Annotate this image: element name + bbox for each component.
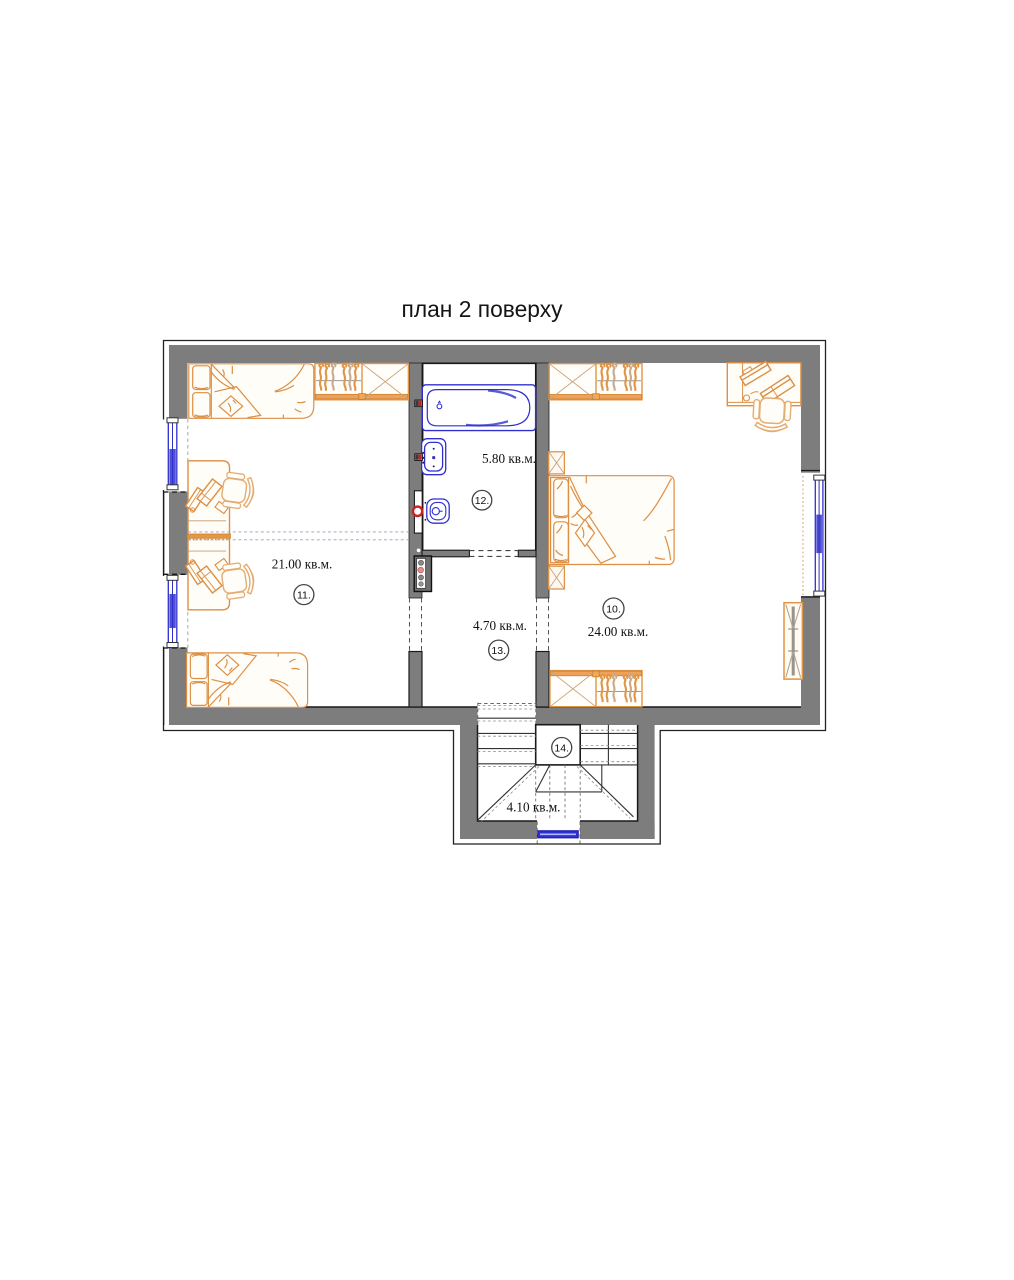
svg-text:14.: 14. — [554, 743, 569, 755]
svg-text:план 2 поверху: план 2 поверху — [401, 296, 563, 322]
svg-text:21.00 кв.м.: 21.00 кв.м. — [272, 557, 333, 572]
svg-text:11.: 11. — [297, 590, 311, 602]
svg-text:13.: 13. — [491, 645, 506, 657]
svg-text:5.80 кв.м.: 5.80 кв.м. — [482, 451, 536, 466]
svg-text:24.00 кв.м.: 24.00 кв.м. — [588, 624, 649, 639]
svg-text:4.10 кв.м.: 4.10 кв.м. — [507, 800, 561, 815]
svg-text:4.70 кв.м.: 4.70 кв.м. — [473, 618, 527, 633]
svg-text:12.: 12. — [475, 495, 490, 507]
svg-text:10.: 10. — [606, 604, 621, 616]
